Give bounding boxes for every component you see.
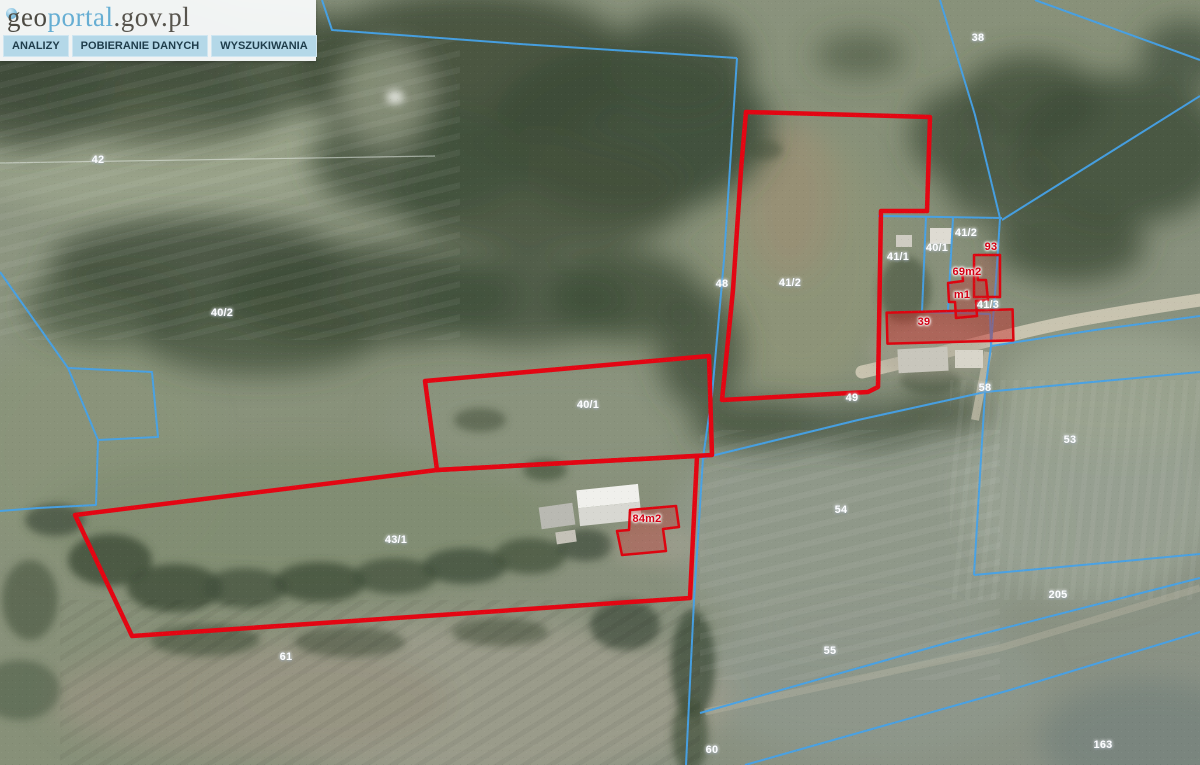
menu-analizy[interactable]: ANALIZY bbox=[3, 35, 69, 57]
map-viewport[interactable]: 423840/24841/241/240/141/141/340/1495853… bbox=[0, 0, 1200, 765]
menu-wyszukiwania[interactable]: WYSZUKIWANIA bbox=[211, 35, 316, 57]
logo-text-suffix: .gov.pl bbox=[113, 2, 190, 32]
photo-grain-overlay bbox=[0, 0, 1200, 765]
main-menu: ANALIZY POBIERANIE DANYCH WYSZUKIWANIA bbox=[3, 35, 313, 57]
geoportal-logo[interactable]: geoportal.gov.pl bbox=[0, 1, 316, 32]
header-panel: geoportal.gov.pl ANALIZY POBIERANIE DANY… bbox=[0, 0, 316, 61]
logo-text-geo: geo bbox=[7, 2, 47, 32]
logo-text-portal: portal bbox=[47, 2, 113, 32]
menu-pobieranie-danych[interactable]: POBIERANIE DANYCH bbox=[72, 35, 209, 57]
aerial-map[interactable] bbox=[0, 0, 1200, 765]
